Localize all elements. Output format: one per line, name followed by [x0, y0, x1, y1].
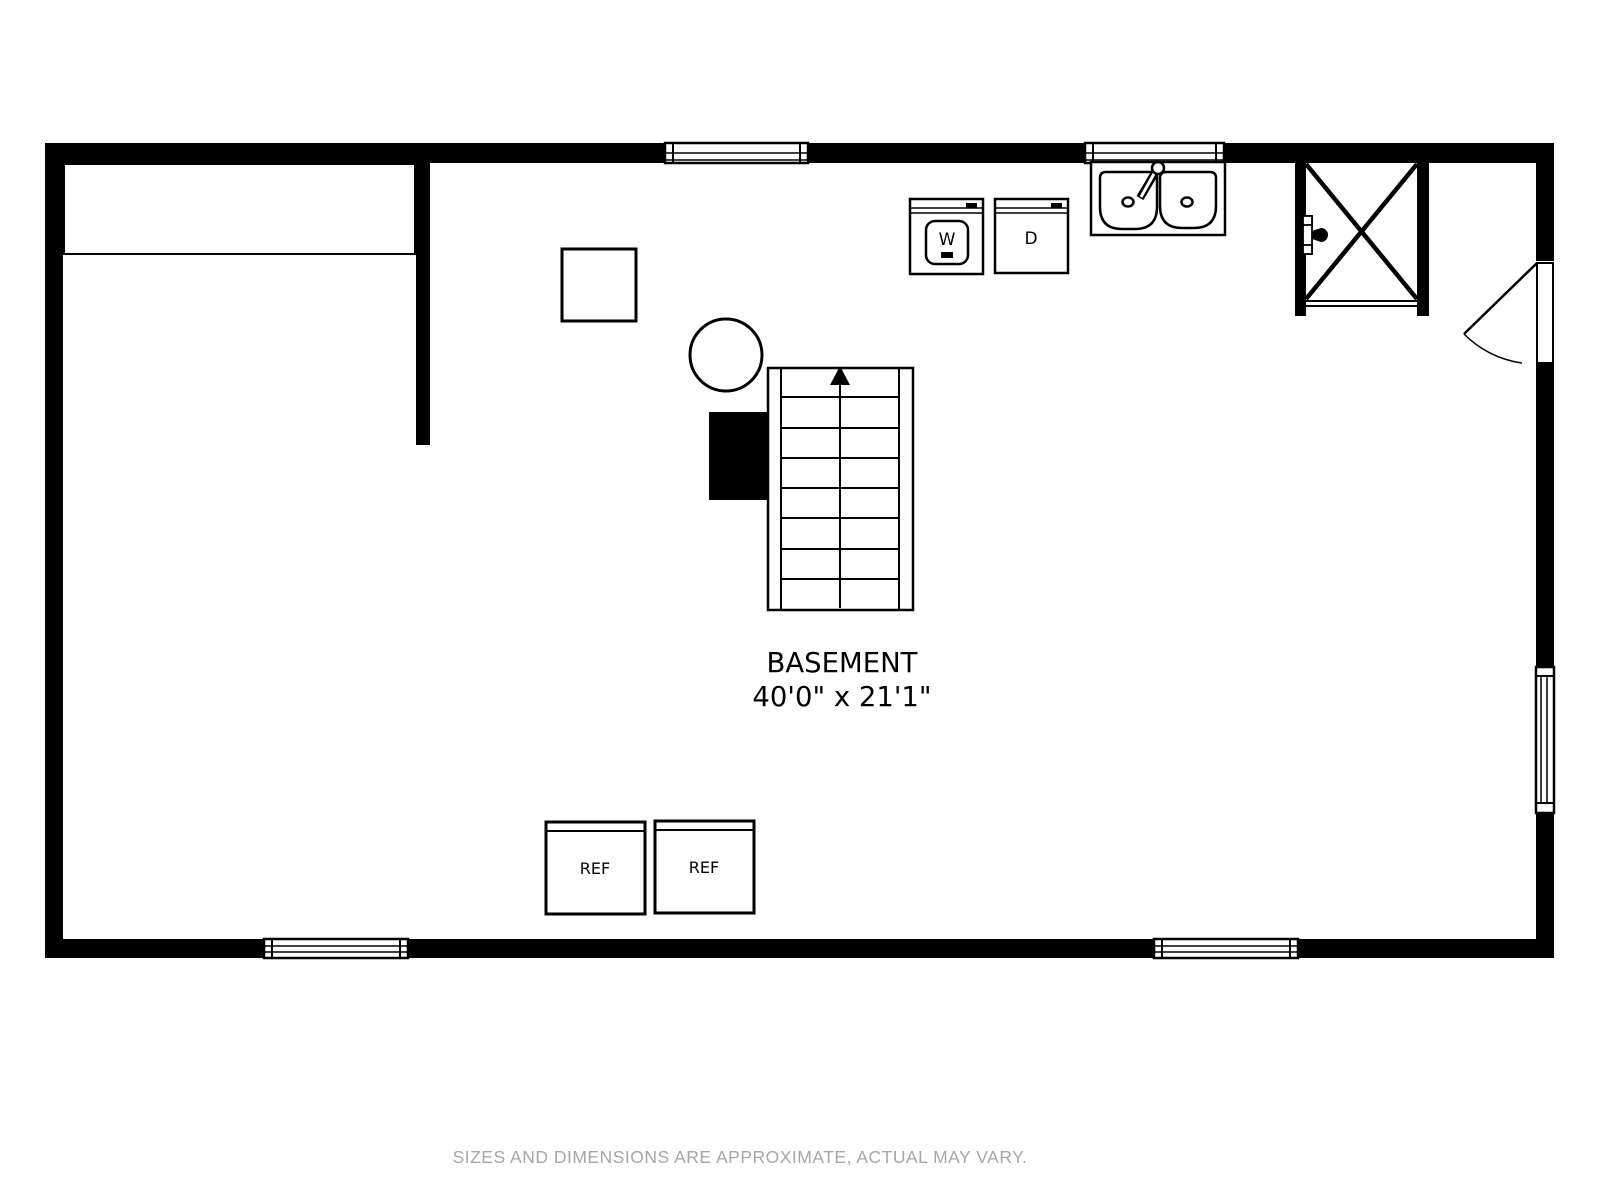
window-bottom-right [1154, 939, 1298, 958]
interior-partition [64, 163, 430, 445]
shower-valve-bottom [1303, 245, 1312, 254]
bottom-wall-left-segment [45, 939, 264, 958]
storage-area-outline [64, 164, 415, 254]
window-bottom-left [264, 939, 408, 958]
window-top-left [665, 143, 808, 163]
shower-stall [1295, 163, 1429, 316]
top-wall-right-segment [1224, 143, 1554, 163]
floor-plan-page: W D REF REF [0, 0, 1600, 1200]
square-fixture [562, 249, 636, 321]
right-wall-lower-segment [1536, 813, 1554, 958]
room-name-label: BASEMENT [767, 647, 918, 679]
door-leaf [1464, 263, 1537, 334]
round-fixture [690, 319, 762, 391]
laundry-sink [1091, 162, 1225, 235]
window-frame [1536, 667, 1554, 813]
window-top-right [1085, 143, 1224, 163]
shower-valve-top [1303, 216, 1312, 225]
window-right-wall [1536, 667, 1554, 813]
door-frame [1537, 263, 1553, 363]
floor-plan-svg: W D REF REF [0, 0, 1600, 1200]
washer-latch [941, 252, 953, 258]
dryer-label: D [1024, 229, 1037, 249]
washer-control [966, 203, 977, 208]
washer: W [910, 199, 983, 274]
window-frame [1154, 939, 1298, 958]
staircase [768, 366, 913, 610]
shower-handle-icon [1312, 228, 1328, 242]
refrigerator-2: REF [655, 821, 754, 913]
left-wall [45, 143, 63, 958]
room-dimensions-label: 40'0" x 21'1" [752, 681, 931, 713]
sink-faucet-head [1152, 162, 1164, 174]
shower-right-post [1417, 163, 1429, 316]
dryer: D [995, 199, 1068, 273]
chimney-block [709, 412, 768, 500]
fridge-label: REF [689, 858, 719, 877]
fridge-label: REF [580, 859, 610, 878]
sink-drain-left [1123, 198, 1134, 207]
washer-label: W [939, 230, 956, 250]
bottom-wall-middle-segment [408, 939, 1154, 958]
entry-door [1464, 263, 1553, 363]
dryer-control [1051, 203, 1062, 208]
right-wall-upper-segment [1536, 143, 1554, 261]
footer-disclaimer: SIZES AND DIMENSIONS ARE APPROXIMATE, AC… [453, 1147, 1028, 1167]
right-wall-middle-segment [1536, 364, 1554, 667]
top-wall-left-segment [45, 143, 665, 163]
interior-wall [416, 163, 430, 445]
sink-drain-right [1182, 198, 1193, 207]
door-swing-arc [1464, 334, 1522, 363]
top-wall-middle-segment [808, 143, 1085, 163]
window-frame [264, 939, 408, 958]
bottom-wall-right-segment [1298, 939, 1554, 958]
refrigerator-1: REF [546, 822, 645, 914]
